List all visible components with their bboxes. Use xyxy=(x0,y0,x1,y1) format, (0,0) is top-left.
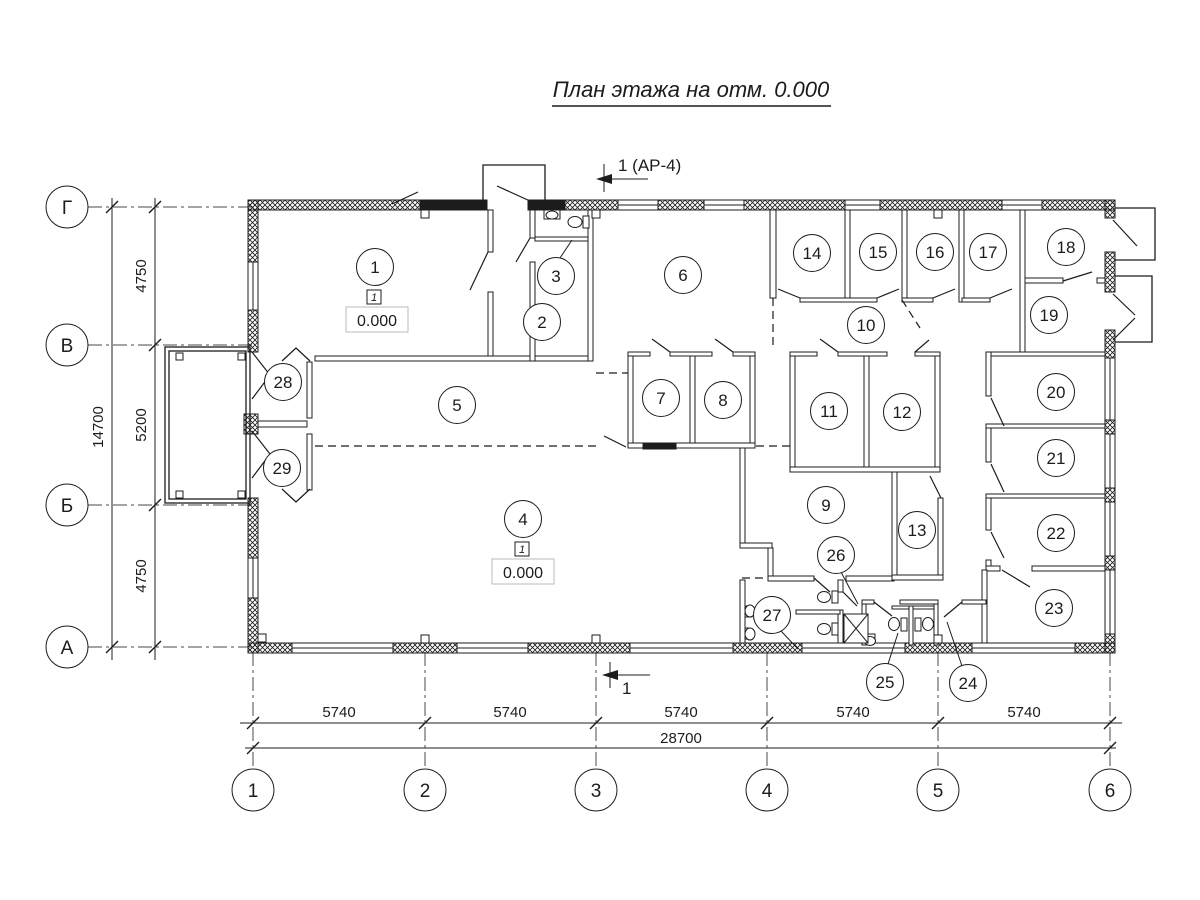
room-badge: 19 xyxy=(1031,297,1068,334)
room-badge: 7 xyxy=(643,380,680,417)
elevation-value: 0.000 xyxy=(503,565,543,582)
entrance-porches xyxy=(165,165,1155,503)
toilet-icon xyxy=(818,623,839,635)
room-number: 20 xyxy=(1047,383,1066,402)
dimension-value: 14700 xyxy=(90,406,107,448)
axis-label: 1 xyxy=(248,781,259,802)
elevation-marks: 10.00010.000 xyxy=(346,290,554,584)
dimension-value: 5740 xyxy=(664,704,697,721)
axis-badge-row: А xyxy=(46,626,88,668)
floor-plan-canvas: 1 (АР-4) 1 План этажа на отм. 0.000 1234… xyxy=(0,0,1200,900)
room-number: 4 xyxy=(518,510,527,529)
room-number: 16 xyxy=(926,243,945,262)
axis-badge-col: 2 xyxy=(404,769,446,811)
dimension-value: 28700 xyxy=(660,730,702,747)
room-badge: 22 xyxy=(1038,515,1075,552)
room-number: 17 xyxy=(979,243,998,262)
room-badge: 1 xyxy=(357,249,394,286)
floor-elevation-mark: 10.000 xyxy=(346,290,408,332)
room-number: 25 xyxy=(876,673,895,692)
dimension-value: 5200 xyxy=(133,408,150,441)
room-badge: 18 xyxy=(1048,229,1085,266)
toilet-icon xyxy=(889,618,908,632)
room-badge: 27 xyxy=(754,597,791,634)
room-number: 2 xyxy=(537,313,546,332)
sink-icon xyxy=(745,628,755,640)
axis-badge-col: 6 xyxy=(1089,769,1131,811)
room-badge: 2 xyxy=(524,304,561,341)
room-number: 19 xyxy=(1040,306,1059,325)
section-label-top: 1 (АР-4) xyxy=(618,156,681,175)
room-badge: 13 xyxy=(899,512,936,549)
drawing-title: План этажа на отм. 0.000 xyxy=(553,77,830,102)
dimension-value: 5740 xyxy=(836,704,869,721)
sink-icon xyxy=(544,210,560,219)
axis-badge-row: Г xyxy=(46,186,88,228)
room-badge: 8 xyxy=(705,382,742,419)
dimension-value: 5740 xyxy=(322,704,355,721)
room-number: 3 xyxy=(551,267,560,286)
room-number: 23 xyxy=(1045,599,1064,618)
room-number: 15 xyxy=(869,243,888,262)
axis-label: 2 xyxy=(420,781,431,802)
room-badge: 5 xyxy=(439,387,476,424)
room-number: 9 xyxy=(821,496,830,515)
room-badge: 15 xyxy=(860,234,897,271)
axis-badge-col: 4 xyxy=(746,769,788,811)
room-badge: 3 xyxy=(538,258,575,295)
room-badge: 20 xyxy=(1038,374,1075,411)
room-badge: 25 xyxy=(867,664,904,701)
axis-badge-col: 5 xyxy=(917,769,959,811)
axis-badge-row: В xyxy=(46,324,88,366)
axis-label: А xyxy=(61,638,74,659)
room-badge: 11 xyxy=(811,393,848,430)
room-badge: 23 xyxy=(1036,590,1073,627)
room-badge: 28 xyxy=(265,364,302,401)
room-number: 5 xyxy=(452,396,461,415)
axis-label: Б xyxy=(61,496,73,517)
toilet-icon xyxy=(568,216,589,228)
room-number: 27 xyxy=(763,606,782,625)
dimension-value: 5740 xyxy=(1007,704,1040,721)
room-number: 7 xyxy=(656,389,665,408)
dashed-opening-lines xyxy=(315,298,920,578)
room-badge: 6 xyxy=(665,257,702,294)
room-badge: 14 xyxy=(794,235,831,272)
drawing-sheet: 1 (АР-4) 1 План этажа на отм. 0.000 1234… xyxy=(0,0,1200,900)
room-number: 18 xyxy=(1057,238,1076,257)
room-badge: 29 xyxy=(264,450,301,487)
room-badge: 26 xyxy=(818,537,855,574)
axis-label: 4 xyxy=(762,781,773,802)
dimension-value: 4750 xyxy=(133,259,150,292)
toilet-icon xyxy=(818,591,839,603)
section-mark-bottom: 1 xyxy=(602,662,650,698)
duct-shaft-icon xyxy=(844,614,868,643)
room-badge: 21 xyxy=(1038,440,1075,477)
room-number: 24 xyxy=(959,674,978,693)
room-number: 21 xyxy=(1047,449,1066,468)
room-number: 22 xyxy=(1047,524,1066,543)
room-number: 1 xyxy=(370,258,379,277)
floor-type-number: 1 xyxy=(371,292,377,304)
axis-label: 3 xyxy=(591,781,602,802)
room-badge: 4 xyxy=(505,501,542,538)
room-badge: 24 xyxy=(950,665,987,702)
dimension-value: 5740 xyxy=(493,704,526,721)
room-badge: 12 xyxy=(884,394,921,431)
room-number: 11 xyxy=(820,402,838,421)
toilet-icon xyxy=(915,618,934,632)
room-number: 12 xyxy=(893,403,912,422)
room-number: 26 xyxy=(827,546,846,565)
room-badge: 17 xyxy=(970,234,1007,271)
floor-type-number: 1 xyxy=(519,544,525,556)
room-number: 8 xyxy=(718,391,727,410)
axis-label: 6 xyxy=(1105,781,1116,802)
room-badge: 10 xyxy=(848,307,885,344)
section-mark-top: 1 (АР-4) xyxy=(596,156,681,192)
axis-label: 5 xyxy=(933,781,944,802)
axis-label: В xyxy=(61,336,74,357)
room-number: 29 xyxy=(273,459,292,478)
floor-elevation-mark: 10.000 xyxy=(492,542,554,584)
room-number: 14 xyxy=(803,244,822,263)
room-number: 13 xyxy=(908,521,927,540)
axis-badge-col: 1 xyxy=(232,769,274,811)
room-number: 6 xyxy=(678,266,687,285)
elevation-value: 0.000 xyxy=(357,313,397,330)
axis-badge-col: 3 xyxy=(575,769,617,811)
section-label-bottom: 1 xyxy=(622,679,631,698)
room-badge: 16 xyxy=(917,234,954,271)
dimension-value: 4750 xyxy=(133,559,150,592)
axis-badge-row: Б xyxy=(46,484,88,526)
room-badge: 9 xyxy=(808,487,845,524)
room-number: 10 xyxy=(857,316,876,335)
room-number: 28 xyxy=(274,373,293,392)
axis-label: Г xyxy=(62,198,72,219)
